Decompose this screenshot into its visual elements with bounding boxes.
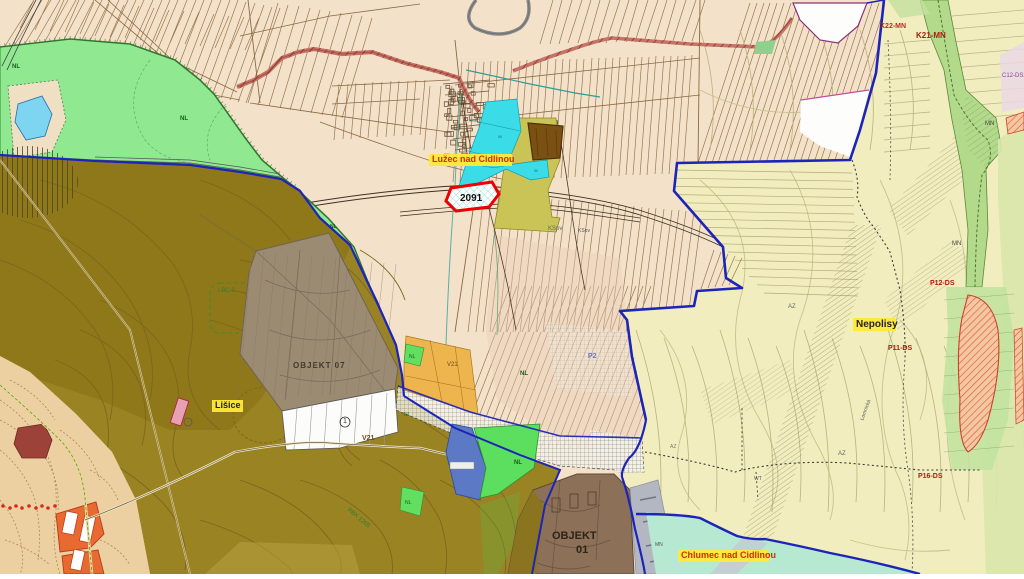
svg-text:01: 01 [576, 544, 588, 556]
svg-text:WT: WT [754, 476, 762, 482]
svg-text:MN: MN [655, 542, 663, 548]
svg-text:LBC 2: LBC 2 [218, 288, 235, 294]
svg-text:P16-DS: P16-DS [918, 473, 943, 480]
svg-text:AZ: AZ [788, 304, 796, 310]
svg-text:NL: NL [12, 64, 20, 70]
svg-text:1: 1 [343, 418, 347, 425]
svg-text:V21: V21 [362, 435, 375, 442]
svg-text:NL: NL [180, 116, 188, 122]
svg-text:C12-DS2: C12-DS2 [1002, 73, 1024, 79]
svg-text:MN: MN [985, 121, 994, 127]
svg-text:Chlumec nad Cidlinou: Chlumec nad Cidlinou [681, 550, 776, 560]
svg-text:KSpv: KSpv [548, 226, 562, 232]
svg-text:P12-DS: P12-DS [930, 280, 955, 287]
svg-text:OBJEKT: OBJEKT [552, 530, 597, 542]
svg-text:P11-DS: P11-DS [888, 345, 912, 352]
svg-text:W: W [534, 168, 538, 173]
svg-text:2091: 2091 [460, 193, 483, 204]
svg-text:K22-MN: K22-MN [880, 23, 906, 30]
svg-text:AZ: AZ [838, 451, 846, 457]
svg-text:Lišice: Lišice [215, 400, 241, 410]
svg-text:Lužec nad Cidlinou: Lužec nad Cidlinou [432, 154, 515, 164]
svg-text:AZ: AZ [670, 444, 676, 450]
svg-text:NL: NL [404, 412, 411, 418]
svg-text:NL: NL [409, 354, 416, 360]
svg-text:V21: V21 [447, 362, 458, 368]
svg-text:KSpv: KSpv [578, 228, 590, 234]
svg-text:NL: NL [520, 371, 528, 377]
svg-text:NL: NL [514, 460, 522, 466]
svg-text:NL: NL [405, 500, 412, 506]
svg-text:K21-MN: K21-MN [916, 31, 946, 40]
svg-text:MN: MN [952, 241, 961, 247]
svg-text:Nepolisy: Nepolisy [856, 319, 898, 330]
svg-text:W: W [498, 134, 502, 139]
